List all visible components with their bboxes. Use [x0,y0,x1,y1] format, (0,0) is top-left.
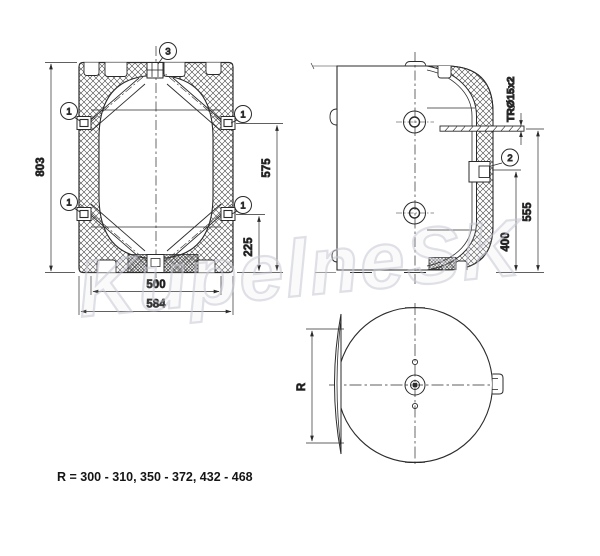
pipe-label: TRØ15x2 [505,76,517,122]
dim-584: 584 [146,299,166,311]
callout-2-label: 2 [507,153,512,164]
side-body [311,52,493,286]
side-dimensions: 555 400 [492,129,544,273]
dim-803: 803 [35,157,47,176]
bottom-bracket [493,374,504,394]
front-shell-insulation [79,63,233,273]
dim-225: 225 [243,237,255,257]
radius-note: R = 300 - 310, 350 - 372, 432 - 468 [57,470,253,484]
technical-drawing-page: 1 1 1 1 3 803 575 [0,0,600,556]
dim-500: 500 [146,279,165,291]
dim-555: 555 [522,202,534,222]
callout-1-label: 1 [66,107,71,118]
hanger-tab-upper [330,109,337,125]
dim-R: R [296,382,308,391]
drawing-canvas: 1 1 1 1 3 803 575 [0,0,600,556]
dim-400: 400 [500,232,512,251]
bottom-view: R [296,303,503,467]
front-view: 1 1 1 1 3 803 575 [35,43,283,316]
lens-profile [335,314,342,454]
callout-3-label: 3 [165,47,170,58]
svg-text:1: 1 [240,201,245,212]
hanger-tab-lower [332,250,337,262]
svg-text:1: 1 [66,198,71,209]
dim-575: 575 [261,158,273,178]
side-view: TRØ15x2 2 555 400 [311,52,544,286]
front-bottom-fitting [147,255,164,273]
front-top-fitting [147,63,163,79]
svg-text:1: 1 [240,110,245,121]
